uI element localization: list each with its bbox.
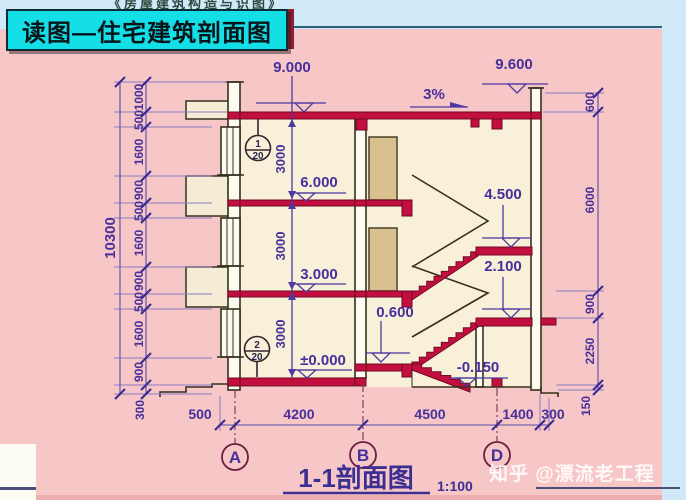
storey-height-label: 3000: [273, 145, 288, 174]
dim-label: 1600: [132, 138, 146, 165]
window-floor2: [221, 218, 240, 266]
dim-label: 1600: [132, 320, 146, 347]
wall-slab-joint: [355, 378, 366, 386]
entry-steps-right: [541, 387, 558, 397]
roof-beam-b: [356, 119, 367, 130]
dim-label: 500: [132, 292, 146, 312]
callout-2-num: 2: [254, 340, 260, 351]
roof-beam-mid: [471, 119, 479, 127]
left-facade: [160, 101, 230, 397]
landing-2100: [476, 318, 532, 326]
stair-door-floor3: [369, 137, 397, 200]
dim-label: 4500: [414, 406, 445, 422]
beam-0600: [402, 364, 412, 377]
landing-4500: [476, 247, 532, 255]
wall-slab-joint: [355, 200, 366, 206]
wall-slab-joint: [228, 112, 240, 119]
overall-height-label: 10300: [102, 217, 119, 259]
roof-beam-d: [492, 119, 502, 129]
entry-steps-left: [160, 384, 229, 397]
slab-3000: [228, 291, 412, 297]
dim-label: 500: [132, 201, 146, 221]
window-floor3: [221, 127, 240, 175]
slab-6000: [228, 200, 412, 206]
stair-door-floor2: [369, 228, 397, 291]
dim-label: 900: [583, 294, 597, 314]
level-3000: 3.000: [300, 266, 338, 283]
level-0000: ±0.000: [300, 352, 346, 369]
ground-beam-d: [492, 378, 502, 387]
entry-canopy: [541, 318, 556, 325]
dim-label: 4200: [283, 406, 314, 422]
level-triangle: [508, 84, 526, 93]
dim-label: 300: [133, 400, 147, 420]
wall-slab-joint: [228, 291, 240, 297]
wall-slab-joint: [355, 364, 366, 371]
callout-2-den: 20: [251, 352, 263, 363]
window-floor1: [221, 309, 240, 357]
level-6000: 6.000: [300, 174, 338, 191]
section-drawing: 3000 3000 3000 9.000 9.600 3% 6.000 3.00…: [0, 0, 686, 500]
dim-label: 2250: [583, 337, 597, 364]
roof-slope-label: 3%: [423, 86, 445, 103]
roof-cornice: [186, 101, 230, 119]
dim-label: 900: [132, 180, 146, 200]
wall-slab-joint: [531, 112, 541, 119]
dim-label: 1400: [502, 406, 533, 422]
left-dimensions: 10300 1000 500 1600 900 500 1600 900 500…: [102, 77, 227, 420]
beam-6000: [402, 200, 412, 216]
dim-label: 1600: [132, 229, 146, 256]
right-dimensions: 600 6000 900 2250 150: [543, 88, 604, 416]
dim-label: 150: [579, 396, 593, 416]
ground-slab: [228, 378, 366, 386]
axis-label-a: A: [229, 448, 241, 467]
slide: 《房屋建筑构造与识图》 读图—住宅建筑剖面图: [0, 0, 686, 500]
dim-label: 900: [132, 271, 146, 291]
slope-arrow: [450, 102, 468, 107]
watermark: 知乎 @漂流老工程: [489, 459, 655, 486]
windows: [217, 127, 244, 357]
dim-label: 1000: [132, 83, 146, 110]
dim-label: 900: [132, 362, 146, 382]
callout-1-den: 20: [252, 151, 264, 162]
level-triangle: [295, 103, 313, 112]
level-4500: 4.500: [484, 186, 522, 203]
wall-axis-b: [355, 118, 366, 378]
bottom-dimensions: 500 4200 4500 1400 300 A B D: [188, 384, 565, 470]
caption-scale: 1:100: [437, 478, 473, 494]
level-minus0150: -0.150: [457, 359, 500, 376]
dim-label: 500: [132, 110, 146, 130]
balcony-box-lower: [186, 267, 230, 307]
caption-title: 1-1剖面图: [298, 463, 414, 493]
wall-slab-joint: [228, 378, 240, 386]
dim-label: 300: [541, 406, 565, 422]
dim-label: 500: [188, 406, 212, 422]
level-0600: 0.600: [376, 304, 414, 321]
wall-right: [531, 88, 541, 390]
roof-slab: [228, 112, 541, 119]
callout-1-num: 1: [255, 139, 261, 150]
level-2100: 2.100: [484, 258, 522, 275]
balcony-box-upper: [186, 176, 230, 216]
storey-height-label: 3000: [273, 320, 288, 349]
dim-label: 6000: [583, 186, 597, 213]
storey-height-label: 3000: [273, 232, 288, 261]
drawing-caption: 1-1剖面图 1:100: [283, 463, 473, 494]
wall-slab-joint: [228, 200, 240, 206]
level-9600: 9.600: [495, 56, 533, 73]
dim-label: 600: [583, 92, 597, 112]
level-9000: 9.000: [273, 59, 311, 76]
wall-slab-joint: [355, 291, 366, 297]
